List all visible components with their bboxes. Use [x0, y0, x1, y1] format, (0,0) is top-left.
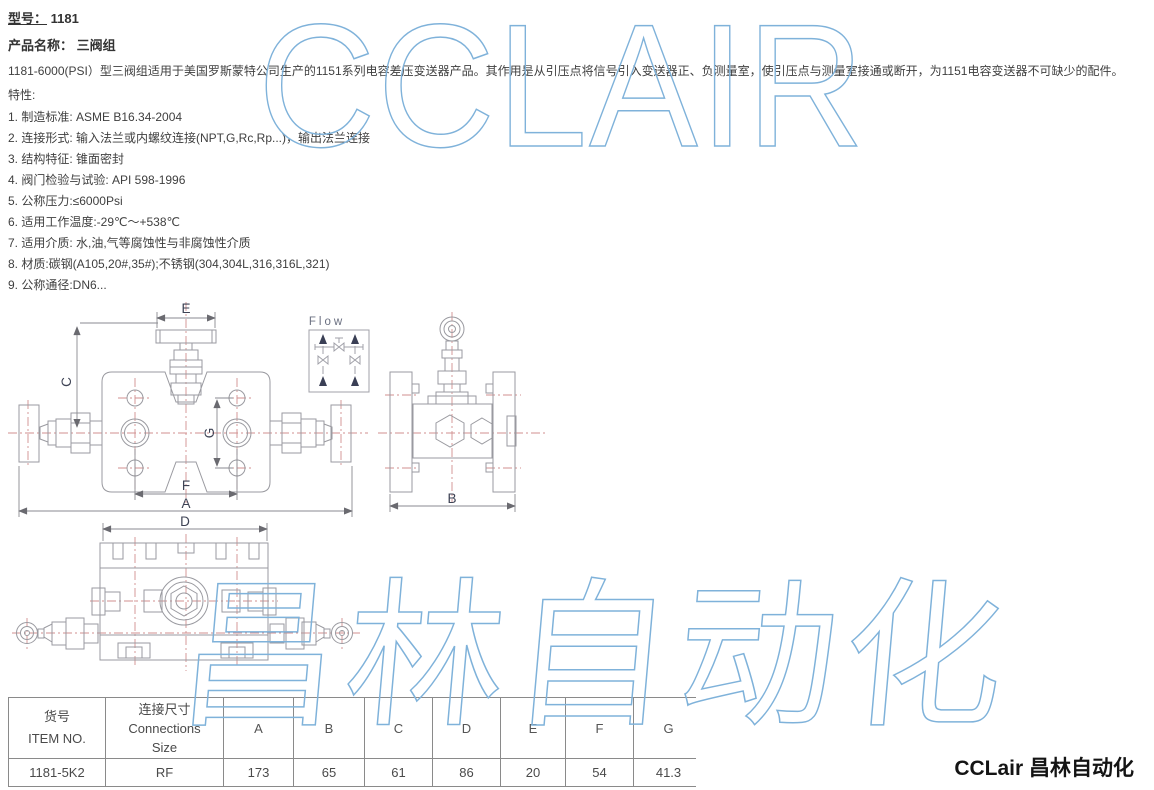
dim-label-a: A [181, 496, 190, 511]
table-header-dim-f: F [566, 698, 633, 758]
front-view [19, 330, 351, 492]
header-item-no-cn: 货号 [44, 706, 70, 728]
model-line: 型号： 1181 [8, 8, 1150, 27]
technical-drawing: E C G F A D B Flow [0, 295, 560, 707]
table-header-dim-e: E [501, 698, 565, 758]
product-name-label: 产品名称： [8, 38, 73, 53]
feature-item: 2. 连接形式: 输入法兰或内螺纹连接(NPT,G,Rc,Rp...)，输出法兰… [8, 128, 1150, 149]
table-cell-item-no: 1181-5K2 [9, 759, 105, 786]
header-connection-cn: 连接尺寸 [138, 700, 190, 719]
table-header-connection: 连接尺寸 Connections Size [106, 698, 223, 758]
feature-item: 4. 阀门检验与试验: API 598-1996 [8, 170, 1150, 191]
header-connection-en: Connections [128, 719, 200, 738]
product-info: 型号： 1181 产品名称： 三阀组 1181-6000(PSI）型三阀组适用于… [8, 8, 1150, 296]
table-cell-b: 65 [294, 759, 364, 786]
feature-item: 3. 结构特征: 锥面密封 [8, 149, 1150, 170]
dim-label-e: E [181, 301, 190, 316]
flow-label: Flow [309, 316, 345, 328]
dim-label-d: D [180, 514, 190, 529]
product-spec-page: CCLAIR 昌林自动化 型号： 1181 产品名称： 三阀组 1181-600… [0, 0, 1154, 790]
feature-item: 8. 材质:碳钢(A105,20#,35#);不锈钢(304,304L,316,… [8, 254, 1150, 275]
dimension-lines [19, 312, 515, 541]
table-header-dim-a: A [224, 698, 293, 758]
table-cell-a: 173 [224, 759, 293, 786]
footer-brand: CCLair 昌林自动化 [954, 752, 1134, 782]
header-connection-size: Size [152, 738, 177, 757]
table-header-dim-c: C [365, 698, 432, 758]
feature-item: 1. 制造标准: ASME B16.34-2004 [8, 107, 1150, 128]
table-header-item-no: 货号 ITEM NO. [9, 698, 105, 758]
table-cell-g: 41.3 [634, 759, 703, 786]
flow-schematic [309, 330, 369, 392]
model-label: 型号： [8, 11, 47, 26]
feature-item: 5. 公称压力:≤6000Psi [8, 191, 1150, 212]
side-view [390, 317, 516, 492]
model-value: 1181 [51, 11, 79, 26]
product-description: 1181-6000(PSI）型三阀组适用于美国罗斯蒙特公司生产的1151系列电容… [8, 62, 1150, 79]
table-cell-d: 86 [433, 759, 500, 786]
table-cell-c: 61 [365, 759, 432, 786]
feature-item: 6. 适用工作温度:-29℃～+538℃ [8, 212, 1150, 233]
table-cell-e: 20 [501, 759, 565, 786]
table-cell-f: 54 [566, 759, 633, 786]
feature-item: 7. 适用介质: 水,油,气等腐蚀性与非腐蚀性介质 [8, 233, 1150, 254]
table-header-dim-b: B [294, 698, 364, 758]
dim-label-b: B [447, 491, 456, 506]
feature-item: 9. 公称通径:DN6... [8, 275, 1150, 296]
dim-label-g: G [202, 428, 217, 439]
header-item-no-en: ITEM NO. [28, 728, 86, 750]
product-name-line: 产品名称： 三阀组 [8, 35, 1150, 54]
dim-label-c: C [59, 377, 74, 387]
product-name-value: 三阀组 [77, 38, 116, 53]
dimensions-table: 货号 ITEM NO. 连接尺寸 Connections Size A B C … [8, 697, 696, 787]
table-cell-connection: RF [106, 759, 223, 786]
table-header-dim-d: D [433, 698, 500, 758]
dim-label-f: F [182, 478, 190, 493]
top-view [17, 543, 353, 660]
features-label: 特性: [8, 86, 1150, 103]
table-header-dim-g: G [634, 698, 703, 758]
centerlines [8, 302, 545, 671]
